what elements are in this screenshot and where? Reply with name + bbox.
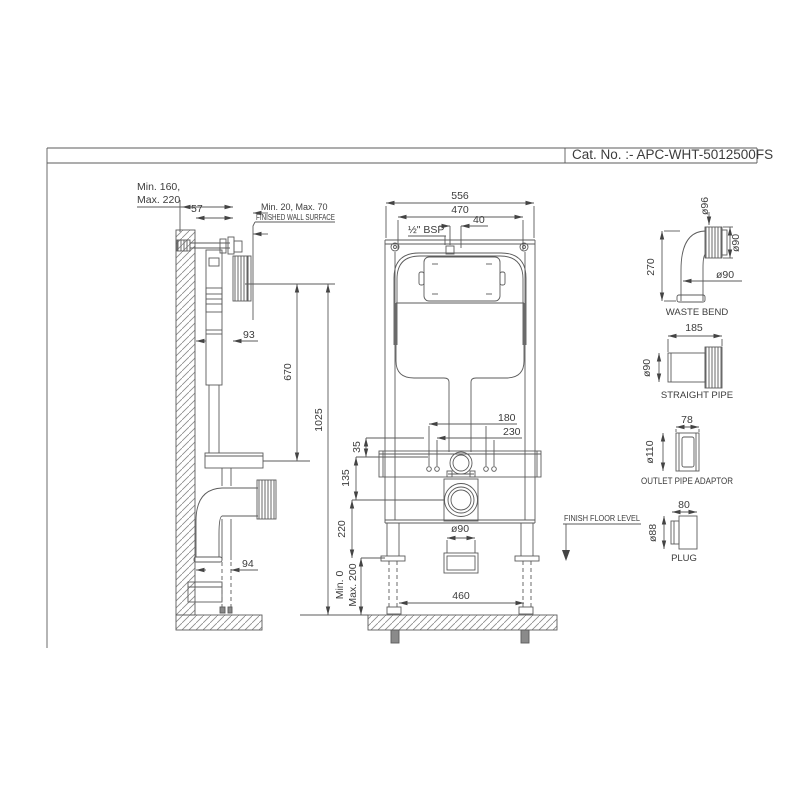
- cistern-side: [206, 250, 222, 385]
- dim-leg-max: Max. 200: [347, 563, 359, 606]
- fixing-hole: [484, 467, 489, 472]
- fixing-hole: [492, 467, 497, 472]
- anchor-bolt-left: [391, 630, 399, 643]
- dim-dia-90-straight: ø90: [641, 359, 653, 377]
- straight-pipe-body: [668, 353, 705, 382]
- part-outlet-adaptor: 78 ø110 OUTLET PIPE ADAPTOR: [641, 414, 733, 487]
- fixing-hole: [427, 467, 432, 472]
- anchor-bolt-right: [521, 630, 529, 643]
- finish-floor-level-label: FINISH FLOOR LEVEL: [564, 514, 640, 523]
- finished-wall-surface-label: FINISHED WALL SURFACE: [256, 213, 335, 222]
- finish-range-label: Min. 20, Max. 70: [261, 202, 328, 212]
- dim-dia-110: ø110: [644, 440, 656, 463]
- plug-neck: [671, 521, 679, 544]
- dim-670: 670: [282, 363, 294, 381]
- dim-93: 93: [243, 329, 255, 341]
- dim-40: 40: [473, 214, 485, 226]
- dim-220: 220: [336, 520, 348, 538]
- straight-pipe-label: STRAIGHT PIPE: [661, 390, 733, 401]
- flush-plate-side: [233, 256, 248, 301]
- installation-drawing: Cat. No. :- APC-WHT-5012500FS: [0, 0, 800, 800]
- waste-bend-collar: [705, 227, 722, 258]
- outlet-socket: [444, 479, 478, 521]
- crossbar-side: [205, 453, 263, 468]
- dim-depth-min: Min. 160,: [137, 181, 180, 193]
- dim-78: 78: [681, 414, 693, 426]
- dim-556: 556: [451, 190, 469, 202]
- dim-185: 185: [685, 322, 703, 334]
- dim-270: 270: [645, 258, 657, 276]
- front-floor-section: [368, 615, 557, 630]
- front-view: 556 470 40 ½" BSP 180 230 35 135 220 Min…: [334, 190, 641, 643]
- dim-57: 57: [191, 203, 203, 215]
- part-plug: 80 ø88 PLUG: [647, 499, 697, 564]
- dim-dia-88: ø88: [647, 524, 659, 542]
- leg-plate-left: [381, 556, 405, 561]
- part-waste-bend: ø96 270 ø90 ø90 WASTE BEND: [645, 197, 742, 318]
- waste-bend-side: [196, 488, 222, 557]
- dim-135: 135: [340, 469, 352, 487]
- floor-level-arrow: [562, 550, 570, 561]
- dim-depth-max: Max. 220: [137, 194, 180, 206]
- finished-wall-plane: [253, 222, 255, 320]
- waste-bend-label: WASTE BEND: [666, 307, 729, 318]
- dim-outlet-dia: ø90: [451, 523, 469, 535]
- dim-dia-90-pipe: ø90: [716, 269, 734, 281]
- dim-180: 180: [498, 412, 516, 424]
- part-straight-pipe: 185 ø90 STRAIGHT PIPE: [641, 322, 733, 401]
- drawing-root: Cat. No. :- APC-WHT-5012500FS: [47, 147, 773, 648]
- outlet-adaptor-label: OUTLET PIPE ADAPTOR: [641, 476, 733, 487]
- technical-drawing-page: Cat. No. :- APC-WHT-5012500FS: [0, 0, 800, 800]
- side-view: Min. 160, Max. 220 57 Min. 20, Max. 70 F…: [137, 181, 368, 630]
- dim-460: 460: [452, 590, 470, 602]
- cistern-tank: [396, 303, 449, 382]
- plug-label: PLUG: [671, 553, 697, 564]
- outlet-adaptor-side: [257, 480, 276, 519]
- catalog-number: Cat. No. :- APC-WHT-5012500FS: [572, 147, 773, 162]
- leg-plate-right: [515, 556, 539, 561]
- side-floor-section: [176, 615, 262, 630]
- dim-35: 35: [351, 441, 363, 453]
- inlet-bsp-label: ½" BSP: [408, 224, 444, 236]
- dim-dia-96: ø96: [699, 197, 711, 215]
- dim-80: 80: [678, 499, 690, 511]
- dim-dia-90-collar: ø90: [730, 234, 742, 252]
- dim-94: 94: [242, 558, 254, 570]
- dim-230: 230: [503, 426, 521, 438]
- wall-section: [176, 230, 195, 615]
- dim-470: 470: [451, 204, 469, 216]
- straight-pipe-collar: [705, 347, 722, 388]
- dim-1025: 1025: [313, 408, 325, 432]
- dim-leg-min: Min. 0: [334, 571, 346, 600]
- sheet-border: [47, 148, 757, 648]
- plug-body: [679, 516, 697, 549]
- fixing-hole: [435, 467, 440, 472]
